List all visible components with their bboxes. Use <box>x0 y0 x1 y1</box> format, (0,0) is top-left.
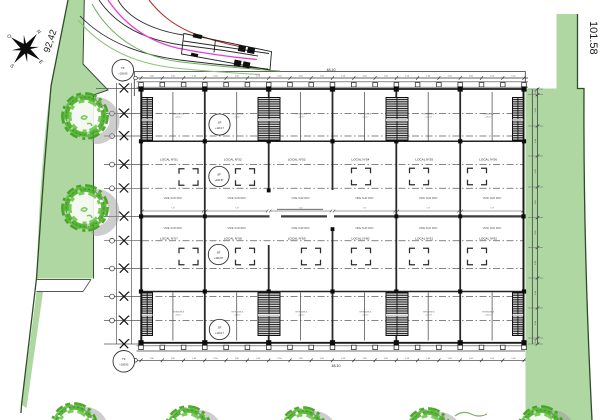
svg-text:SF: SF <box>218 325 222 329</box>
svg-text:LOCAL N°53: LOCAL N°53 <box>288 158 306 162</box>
svg-text:+110.17: +110.17 <box>425 314 432 316</box>
svg-text:SF: SF <box>217 250 221 254</box>
svg-text:+106.87: +106.87 <box>214 179 224 182</box>
svg-text:+110.17: +110.17 <box>485 314 492 316</box>
svg-text:LOCAL N°58: LOCAL N°58 <box>224 236 242 240</box>
svg-text:+106.87: +106.87 <box>214 257 224 260</box>
svg-text:LOCAL N°62: LOCAL N°62 <box>479 236 497 240</box>
svg-text:SF: SF <box>218 120 222 124</box>
svg-text:+110.17: +110.17 <box>175 116 182 118</box>
svg-text:VIDE SUR RDC: VIDE SUR RDC <box>483 226 502 230</box>
svg-text:TERRASSE A: TERRASSE A <box>423 311 436 314</box>
svg-text:VIDE SUR RDC: VIDE SUR RDC <box>291 226 310 230</box>
svg-text:LOCAL N°52: LOCAL N°52 <box>224 158 242 162</box>
svg-text:+110.17: +110.17 <box>425 116 432 118</box>
svg-text:+106.85: +106.85 <box>118 73 128 76</box>
svg-text:LOCAL N°55: LOCAL N°55 <box>415 158 433 162</box>
svg-text:+110.17: +110.17 <box>362 314 369 316</box>
svg-text:+110.17: +110.17 <box>298 116 305 118</box>
svg-text:+110.17: +110.17 <box>234 116 241 118</box>
svg-text:TERRASSE A: TERRASSE A <box>295 311 308 314</box>
svg-text:LOCAL N°56: LOCAL N°56 <box>479 158 497 162</box>
svg-text:VIDE SUR RDC: VIDE SUR RDC <box>419 226 438 230</box>
svg-text:TERRASSE A: TERRASSE A <box>359 113 372 116</box>
svg-text:TF: TF <box>121 66 125 70</box>
svg-text:TERRASSE A: TERRASSE A <box>231 311 244 314</box>
svg-text:TERRASSE A: TERRASSE A <box>423 113 436 116</box>
svg-text:SF: SF <box>217 172 221 176</box>
svg-text:TERRASSE A: TERRASSE A <box>172 113 185 116</box>
svg-text:LOCAL N°59: LOCAL N°59 <box>288 236 306 240</box>
svg-text:+110.17: +110.17 <box>234 314 241 316</box>
svg-text:VIDE SUR RDC: VIDE SUR RDC <box>228 226 247 230</box>
svg-text:TERRASSE A: TERRASSE A <box>482 311 495 314</box>
svg-text:LOCAL N°61: LOCAL N°61 <box>415 236 433 240</box>
svg-text:+106.85: +106.85 <box>119 364 129 367</box>
svg-text:48.10: 48.10 <box>332 364 341 368</box>
svg-text:TERRASSE A: TERRASSE A <box>172 311 185 314</box>
svg-text:LOCAL N°51: LOCAL N°51 <box>160 158 178 162</box>
svg-text:VIDE SUR RDC: VIDE SUR RDC <box>419 196 438 200</box>
svg-text:VIDE SUR RDC: VIDE SUR RDC <box>355 226 374 230</box>
svg-text:TF: TF <box>122 357 126 361</box>
svg-text:TERRASSE A: TERRASSE A <box>295 113 308 116</box>
svg-text:VIDE SUR RDC: VIDE SUR RDC <box>164 196 183 200</box>
svg-text:+110.17: +110.17 <box>215 332 225 335</box>
svg-text:TERRASSE A: TERRASSE A <box>482 113 495 116</box>
svg-text:VIDE SUR RDC: VIDE SUR RDC <box>483 196 502 200</box>
svg-text:+110.17: +110.17 <box>362 116 369 118</box>
svg-text:101.58: 101.58 <box>587 21 599 55</box>
svg-text:+110.17: +110.17 <box>485 116 492 118</box>
svg-text:+110.17: +110.17 <box>215 127 225 130</box>
svg-text:LOCAL N°60: LOCAL N°60 <box>351 236 369 240</box>
svg-text:VIDE SUR RDC: VIDE SUR RDC <box>164 226 183 230</box>
svg-text:VIDE SUR RDC: VIDE SUR RDC <box>291 196 310 200</box>
svg-text:TERRASSE A: TERRASSE A <box>231 113 244 116</box>
svg-text:+110.17: +110.17 <box>298 314 305 316</box>
svg-text:+110.17: +110.17 <box>175 314 182 316</box>
svg-text:VIDE SUR RDC: VIDE SUR RDC <box>228 196 247 200</box>
svg-text:48.10: 48.10 <box>327 68 336 72</box>
svg-text:TERRASSE A: TERRASSE A <box>359 311 372 314</box>
svg-text:LOCAL N°54: LOCAL N°54 <box>351 158 369 162</box>
svg-text:VIDE SUR RDC: VIDE SUR RDC <box>355 196 374 200</box>
svg-text:LOCAL N°57: LOCAL N°57 <box>160 236 178 240</box>
